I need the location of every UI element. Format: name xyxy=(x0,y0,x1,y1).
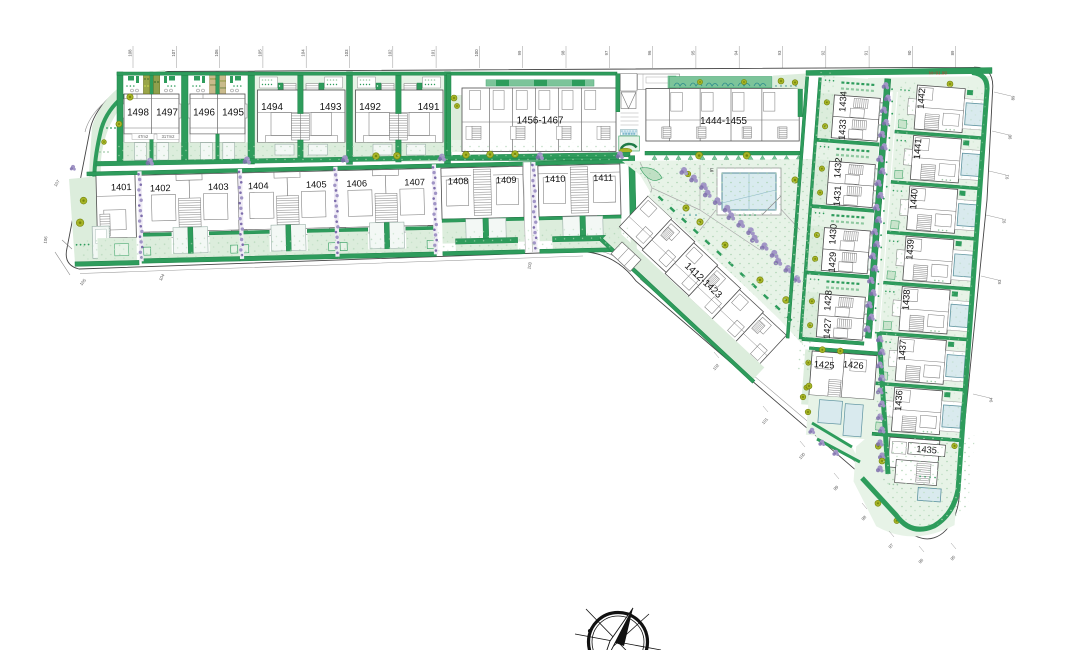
svg-text:1426: 1426 xyxy=(843,359,864,371)
svg-text:95: 95 xyxy=(690,50,695,55)
svg-text:1442: 1442 xyxy=(916,88,928,109)
svg-text:107: 107 xyxy=(171,49,176,57)
svg-text:104: 104 xyxy=(301,49,306,57)
svg-text:94: 94 xyxy=(989,397,994,402)
svg-text:106: 106 xyxy=(214,49,219,57)
svg-text:1495: 1495 xyxy=(222,108,244,119)
svg-text:1437: 1437 xyxy=(897,340,909,361)
svg-text:1491: 1491 xyxy=(418,102,440,113)
svg-text:1433: 1433 xyxy=(837,119,849,140)
svg-text:1406: 1406 xyxy=(346,178,367,188)
svg-text:1409: 1409 xyxy=(496,175,517,185)
svg-text:1405: 1405 xyxy=(306,179,327,189)
svg-text:101: 101 xyxy=(431,49,436,57)
svg-text:1444-1455: 1444-1455 xyxy=(700,116,747,127)
svg-text:1411: 1411 xyxy=(593,173,613,183)
svg-text:93: 93 xyxy=(997,279,1002,284)
svg-text:1430: 1430 xyxy=(827,223,839,244)
svg-text:47m2: 47m2 xyxy=(138,134,149,139)
svg-text:1432: 1432 xyxy=(832,157,844,178)
svg-text:90: 90 xyxy=(907,50,912,55)
svg-text:1403: 1403 xyxy=(208,182,229,192)
svg-text:1492: 1492 xyxy=(359,102,381,113)
svg-text:1425: 1425 xyxy=(814,359,835,371)
svg-text:1493: 1493 xyxy=(320,102,342,113)
svg-text:1404: 1404 xyxy=(248,181,269,191)
svg-text:1410: 1410 xyxy=(545,174,566,184)
svg-text:106: 106 xyxy=(43,235,49,243)
svg-text:108: 108 xyxy=(128,49,133,57)
svg-text:1440: 1440 xyxy=(908,188,920,209)
svg-text:1436: 1436 xyxy=(893,390,905,411)
svg-text:1431: 1431 xyxy=(832,185,844,206)
svg-text:92: 92 xyxy=(1002,218,1007,223)
svg-text:89: 89 xyxy=(950,50,955,55)
svg-text:105: 105 xyxy=(257,49,262,57)
svg-text:1498: 1498 xyxy=(127,108,149,119)
svg-text:103: 103 xyxy=(344,49,349,57)
svg-text:1407: 1407 xyxy=(404,177,425,187)
svg-text:1496: 1496 xyxy=(193,108,215,119)
svg-text:91: 91 xyxy=(864,50,869,55)
svg-text:1434: 1434 xyxy=(837,91,849,112)
svg-text:1441: 1441 xyxy=(912,138,924,159)
svg-text:91: 91 xyxy=(1005,174,1010,179)
svg-text:98: 98 xyxy=(561,50,566,55)
svg-text:1494: 1494 xyxy=(261,102,283,113)
svg-text:1439: 1439 xyxy=(904,239,916,260)
svg-text:1456-1467: 1456-1467 xyxy=(517,116,564,127)
svg-text:89: 89 xyxy=(1010,95,1015,100)
svg-text:1497: 1497 xyxy=(156,108,178,119)
svg-text:92: 92 xyxy=(820,50,825,55)
svg-text:1429: 1429 xyxy=(827,252,839,273)
svg-text:1408: 1408 xyxy=(448,176,469,186)
svg-text:317m2: 317m2 xyxy=(162,134,175,139)
svg-text:100: 100 xyxy=(474,49,479,57)
svg-text:97: 97 xyxy=(604,50,609,55)
svg-text:90: 90 xyxy=(1008,134,1013,139)
svg-text:1438: 1438 xyxy=(901,289,913,310)
svg-text:1401: 1401 xyxy=(111,182,132,192)
svg-text:1428: 1428 xyxy=(822,290,834,311)
svg-text:1402: 1402 xyxy=(150,183,171,193)
svg-text:M=91.90: M=91.90 xyxy=(929,71,947,76)
svg-text:99: 99 xyxy=(517,50,522,55)
svg-text:94: 94 xyxy=(734,50,739,55)
svg-text:1427: 1427 xyxy=(822,318,834,339)
svg-text:93: 93 xyxy=(777,50,782,55)
svg-text:102: 102 xyxy=(387,49,392,57)
svg-text:96: 96 xyxy=(647,50,652,55)
